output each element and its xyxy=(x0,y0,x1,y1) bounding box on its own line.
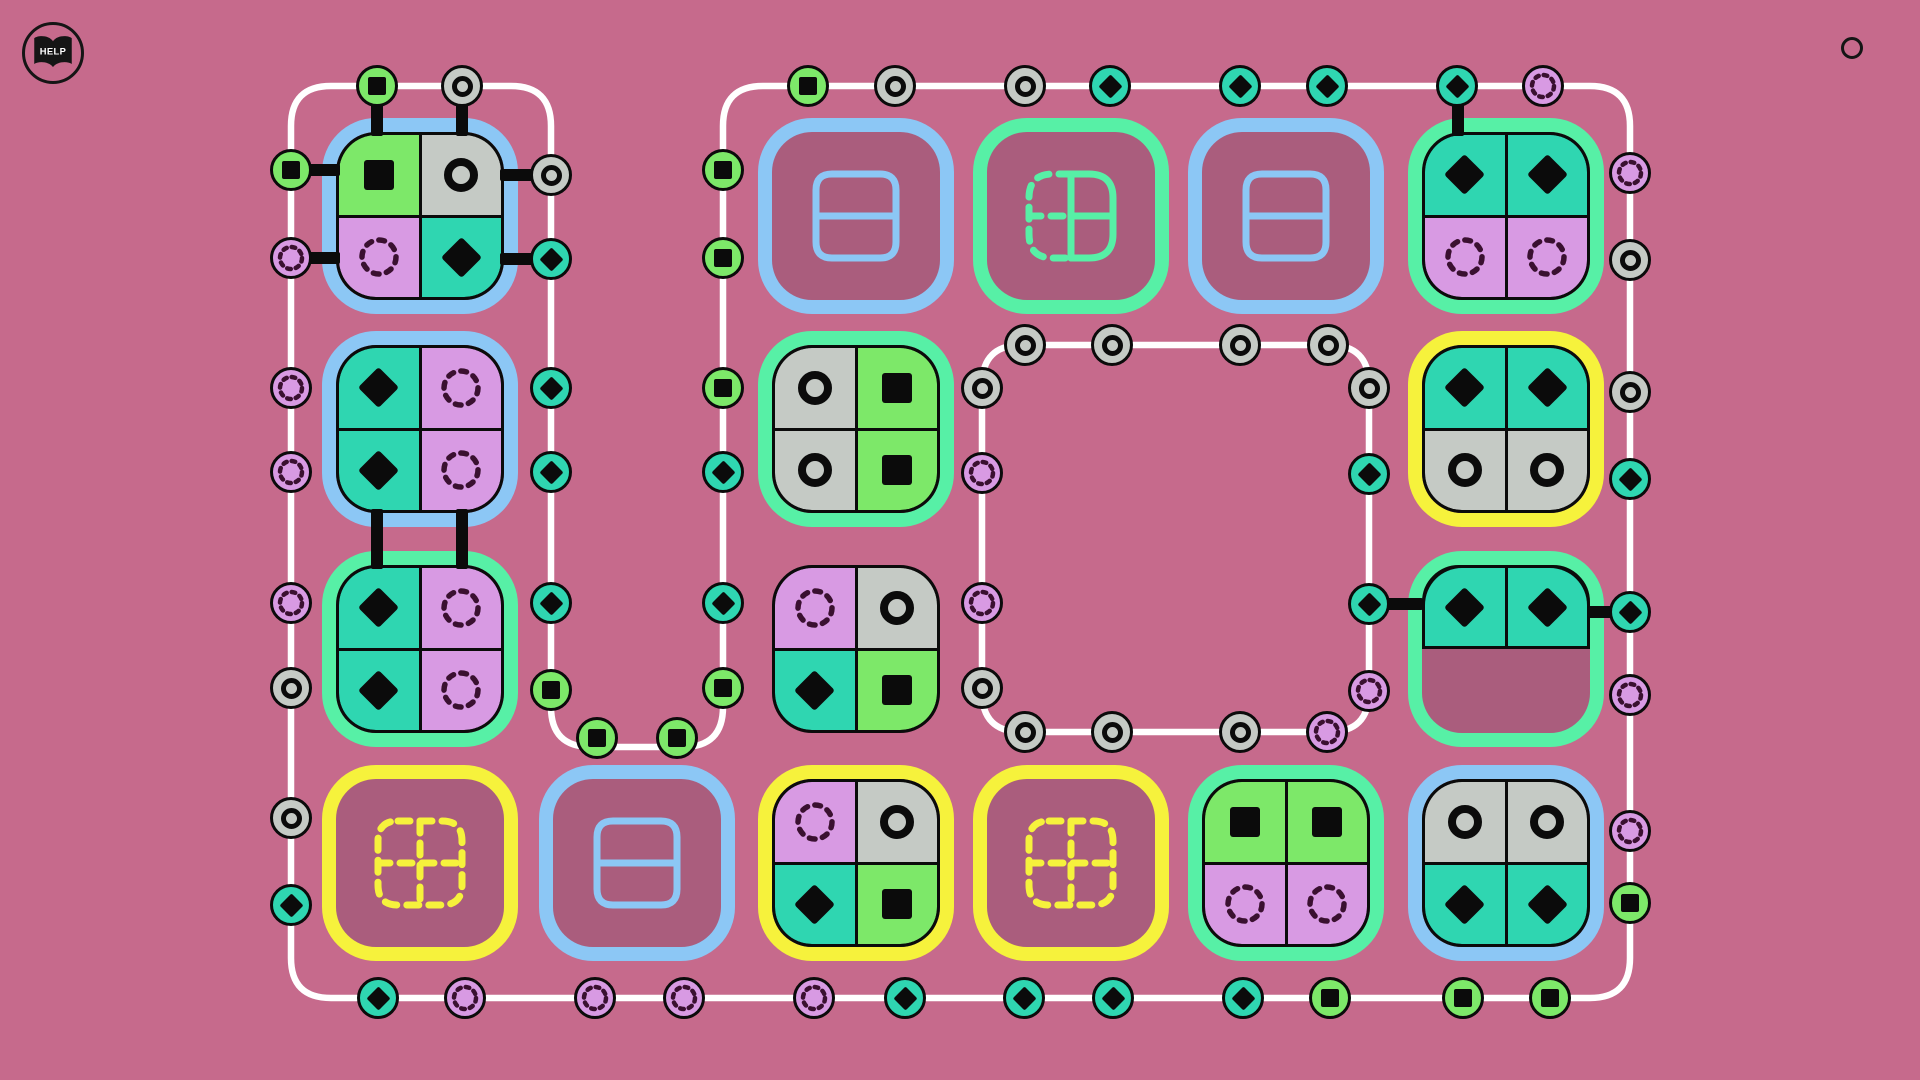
piece-cell-violet-dotted xyxy=(422,431,502,511)
ring-glyph xyxy=(1620,250,1641,271)
square-glyph xyxy=(1541,989,1559,1007)
track-node-violet-dotted xyxy=(1306,711,1348,753)
piece-r3c1[interactable] xyxy=(336,565,504,733)
piece-cell-gray-ring xyxy=(775,431,855,511)
track-node-violet-dotted xyxy=(1348,670,1390,712)
piece-cell-violet-dotted xyxy=(775,568,855,648)
dotted-circle-glyph xyxy=(1312,717,1342,747)
dotted-circle-glyph xyxy=(1443,235,1487,279)
track-node-violet-dotted xyxy=(663,977,705,1019)
piece-cell-violet-dotted xyxy=(1205,865,1285,945)
dotted-circle-glyph xyxy=(967,588,997,618)
empty-slot-two-rows-icon xyxy=(808,168,904,264)
help-button[interactable]: HELP xyxy=(22,22,84,84)
dotted-circle-glyph xyxy=(793,800,837,844)
diamond-glyph xyxy=(1231,986,1255,1010)
diamond-glyph xyxy=(1527,586,1568,627)
dotted-circle-glyph xyxy=(1615,816,1645,846)
track-node-violet-dotted xyxy=(793,977,835,1019)
slot-interior-r4c1 xyxy=(336,779,504,947)
dotted-circle-glyph xyxy=(439,366,483,410)
dotted-circle-glyph xyxy=(1615,158,1645,188)
slot-interior-r1c5 xyxy=(1202,132,1370,300)
diamond-glyph xyxy=(1444,154,1485,195)
diamond-glyph xyxy=(358,587,399,628)
dotted-circle-glyph xyxy=(967,458,997,488)
piece-cell-violet-dotted xyxy=(422,348,502,428)
track-node-green-square xyxy=(702,237,744,279)
slot-interior-r1c4 xyxy=(987,132,1155,300)
track-node-gray-ring xyxy=(1004,65,1046,107)
track-node-gray-ring xyxy=(1091,324,1133,366)
empty-slot-two-rows-icon xyxy=(1238,168,1334,264)
track-node-gray-ring xyxy=(961,667,1003,709)
piece-cell-teal-diamond xyxy=(339,431,419,511)
dotted-circle-glyph xyxy=(1354,676,1384,706)
piece-cell-teal-diamond xyxy=(1508,568,1588,646)
ring-glyph xyxy=(1015,335,1036,356)
piece-cell-violet-dotted xyxy=(422,568,502,648)
track-node-violet-dotted xyxy=(1609,810,1651,852)
tile-slot-r4c2[interactable] xyxy=(539,765,735,961)
tile-slot-r1c4[interactable] xyxy=(973,118,1169,314)
diamond-glyph xyxy=(1618,467,1642,491)
piece-cell-teal-diamond xyxy=(1425,865,1505,945)
diamond-glyph xyxy=(893,986,917,1010)
piece-cell-teal-diamond xyxy=(422,218,502,298)
piece-r4c6[interactable] xyxy=(1422,779,1590,947)
square-glyph xyxy=(1454,989,1472,1007)
track-node-teal-diamond xyxy=(1609,591,1651,633)
square-glyph xyxy=(364,160,394,190)
square-glyph xyxy=(882,373,912,403)
dotted-circle-glyph xyxy=(669,983,699,1013)
ring-glyph xyxy=(1230,722,1251,743)
dotted-circle-glyph xyxy=(439,668,483,712)
square-glyph xyxy=(668,729,686,747)
ring-glyph xyxy=(972,678,993,699)
piece-cell-teal-diamond xyxy=(339,651,419,731)
tile-slot-r1c3[interactable] xyxy=(758,118,954,314)
diamond-glyph xyxy=(1444,884,1485,925)
piece-cell-teal-diamond xyxy=(1508,135,1588,215)
diamond-glyph xyxy=(1444,367,1485,408)
track-node-teal-diamond xyxy=(1222,977,1264,1019)
piece-cell-green-square xyxy=(339,135,419,215)
piece-cell-gray-ring xyxy=(1508,782,1588,862)
track-node-teal-diamond xyxy=(702,582,744,624)
track-node-green-square xyxy=(1442,977,1484,1019)
piece-cell-teal-diamond xyxy=(1425,135,1505,215)
track-node-green-square xyxy=(356,65,398,107)
piece-r1c1[interactable] xyxy=(336,132,504,300)
piece-cell-teal-diamond xyxy=(1508,348,1588,428)
piece-cell-violet-dotted xyxy=(422,651,502,731)
ring-glyph xyxy=(1230,335,1251,356)
track-node-green-square xyxy=(270,149,312,191)
track-node-gray-ring xyxy=(1004,324,1046,366)
square-glyph xyxy=(1621,894,1639,912)
ring-glyph xyxy=(281,808,302,829)
piece-cell-gray-ring xyxy=(858,782,938,862)
empty-slot-dashed-grid-icon xyxy=(372,815,468,911)
inner-track-path xyxy=(982,345,1369,732)
track-node-gray-ring xyxy=(1307,324,1349,366)
piece-cell-teal-diamond xyxy=(1508,865,1588,945)
piece-cell-green-square xyxy=(858,865,938,945)
square-glyph xyxy=(368,77,386,95)
ring-glyph xyxy=(972,378,993,399)
ring-glyph xyxy=(1102,722,1123,743)
track-node-gray-ring xyxy=(441,65,483,107)
piece-cell-green-square xyxy=(858,651,938,731)
track-node-teal-diamond xyxy=(530,451,572,493)
track-node-violet-dotted xyxy=(574,977,616,1019)
dotted-circle-glyph xyxy=(1305,882,1349,926)
piece-r3c3[interactable] xyxy=(772,565,940,733)
diamond-glyph xyxy=(1098,74,1122,98)
ring-glyph xyxy=(1620,382,1641,403)
connector-bar xyxy=(371,509,383,569)
dotted-circle-glyph xyxy=(1615,680,1645,710)
piece-r4c5[interactable] xyxy=(1202,779,1370,947)
diamond-glyph xyxy=(1357,462,1381,486)
diamond-glyph xyxy=(1618,600,1642,624)
diamond-glyph xyxy=(539,376,563,400)
dotted-circle-glyph xyxy=(276,243,306,273)
ring-glyph xyxy=(1318,335,1339,356)
diamond-glyph xyxy=(1101,986,1125,1010)
dotted-circle-glyph xyxy=(276,588,306,618)
track-node-teal-diamond xyxy=(1306,65,1348,107)
track-node-teal-diamond xyxy=(1348,453,1390,495)
slot-interior-r4c4 xyxy=(987,779,1155,947)
ring-glyph xyxy=(1448,805,1482,839)
track-node-gray-ring xyxy=(270,797,312,839)
diamond-glyph xyxy=(358,450,399,491)
track-node-violet-dotted xyxy=(1609,674,1651,716)
ring-glyph xyxy=(798,371,832,405)
connector-bar xyxy=(456,509,468,569)
track-node-teal-diamond xyxy=(1219,65,1261,107)
empty-slot-two-rows-icon xyxy=(589,815,685,911)
diamond-glyph xyxy=(539,247,563,271)
dotted-circle-glyph xyxy=(1528,71,1558,101)
track-node-green-square xyxy=(702,367,744,409)
diamond-glyph xyxy=(539,460,563,484)
track-node-violet-dotted xyxy=(1522,65,1564,107)
diamond-glyph xyxy=(1357,592,1381,616)
piece-cell-teal-diamond xyxy=(1425,568,1505,646)
square-glyph xyxy=(882,675,912,705)
track-node-teal-diamond xyxy=(530,238,572,280)
help-book-icon: HELP xyxy=(28,28,78,78)
track-node-gray-ring xyxy=(1609,239,1651,281)
track-node-teal-diamond xyxy=(1348,583,1390,625)
diamond-glyph xyxy=(1527,154,1568,195)
track-node-gray-ring xyxy=(1004,711,1046,753)
track-node-green-square xyxy=(530,669,572,711)
ring-glyph xyxy=(541,165,562,186)
tile-slot-r4c4[interactable] xyxy=(973,765,1169,961)
ring-glyph xyxy=(1359,378,1380,399)
dotted-circle-glyph xyxy=(439,586,483,630)
track-node-violet-dotted xyxy=(270,237,312,279)
piece-cell-gray-ring xyxy=(858,568,938,648)
track-node-gray-ring xyxy=(1219,324,1261,366)
diamond-glyph xyxy=(1228,74,1252,98)
piece-cell-teal-diamond xyxy=(1425,348,1505,428)
piece-cell-teal-diamond xyxy=(775,651,855,731)
diamond-glyph xyxy=(1527,884,1568,925)
piece-cell-green-square xyxy=(858,431,938,511)
track-node-violet-dotted xyxy=(270,582,312,624)
ring-glyph xyxy=(1015,76,1036,97)
track-node-teal-diamond xyxy=(530,367,572,409)
track-node-teal-diamond xyxy=(884,977,926,1019)
diamond-glyph xyxy=(1012,986,1036,1010)
square-glyph xyxy=(1312,807,1342,837)
track-node-green-square xyxy=(787,65,829,107)
ring-glyph xyxy=(1448,453,1482,487)
track-node-violet-dotted xyxy=(444,977,486,1019)
square-glyph xyxy=(588,729,606,747)
track-node-violet-dotted xyxy=(1609,152,1651,194)
piece-r2c1[interactable] xyxy=(336,345,504,513)
track-node-violet-dotted xyxy=(270,367,312,409)
dotted-circle-glyph xyxy=(276,457,306,487)
corner-circle-button[interactable] xyxy=(1841,37,1863,59)
piece-r3c6[interactable] xyxy=(1422,565,1590,649)
ring-glyph xyxy=(880,805,914,839)
ring-glyph xyxy=(885,76,906,97)
piece-cell-gray-ring xyxy=(1425,782,1505,862)
piece-cell-violet-dotted xyxy=(1425,218,1505,298)
piece-cell-green-square xyxy=(1205,782,1285,862)
track-node-teal-diamond xyxy=(1436,65,1478,107)
diamond-glyph xyxy=(794,670,835,711)
piece-cell-green-square xyxy=(858,348,938,428)
diamond-glyph xyxy=(1445,74,1469,98)
piece-r2c3[interactable] xyxy=(772,345,940,513)
empty-slot-half-dashed-grid-icon xyxy=(1023,168,1119,264)
square-glyph xyxy=(714,249,732,267)
dotted-circle-glyph xyxy=(793,586,837,630)
track-node-gray-ring xyxy=(961,367,1003,409)
piece-cell-violet-dotted xyxy=(1508,218,1588,298)
square-glyph xyxy=(714,679,732,697)
empty-slot-dashed-grid-icon xyxy=(1023,815,1119,911)
piece-cell-gray-ring xyxy=(1508,431,1588,511)
track-node-teal-diamond xyxy=(270,884,312,926)
track-node-green-square xyxy=(1529,977,1571,1019)
ring-glyph xyxy=(1102,335,1123,356)
tile-slot-r4c1[interactable] xyxy=(322,765,518,961)
slot-interior-r4c2 xyxy=(553,779,721,947)
piece-cell-violet-dotted xyxy=(1288,865,1368,945)
square-glyph xyxy=(714,161,732,179)
diamond-glyph xyxy=(279,893,303,917)
track-node-green-square xyxy=(702,149,744,191)
track-node-green-square xyxy=(1609,882,1651,924)
diamond-glyph xyxy=(358,670,399,711)
ring-glyph xyxy=(1015,722,1036,743)
dotted-circle-glyph xyxy=(580,983,610,1013)
track-node-teal-diamond xyxy=(702,451,744,493)
track-node-gray-ring xyxy=(1219,711,1261,753)
track-node-gray-ring xyxy=(1609,371,1651,413)
track-node-gray-ring xyxy=(270,667,312,709)
ring-glyph xyxy=(444,158,478,192)
diamond-glyph xyxy=(358,367,399,408)
piece-r2c6[interactable] xyxy=(1422,345,1590,513)
piece-r1c6[interactable] xyxy=(1422,132,1590,300)
diamond-glyph xyxy=(1444,586,1485,627)
square-glyph xyxy=(714,379,732,397)
ring-glyph xyxy=(281,678,302,699)
dotted-circle-glyph xyxy=(276,373,306,403)
track-node-teal-diamond xyxy=(1092,977,1134,1019)
piece-cell-gray-ring xyxy=(422,135,502,215)
track-node-violet-dotted xyxy=(961,582,1003,624)
track-node-violet-dotted xyxy=(270,451,312,493)
track-node-green-square xyxy=(1309,977,1351,1019)
dotted-circle-glyph xyxy=(357,235,401,279)
track-node-green-square xyxy=(576,717,618,759)
square-glyph xyxy=(882,889,912,919)
diamond-glyph xyxy=(1315,74,1339,98)
piece-cell-green-square xyxy=(1288,782,1368,862)
square-glyph xyxy=(1321,989,1339,1007)
track-node-green-square xyxy=(656,717,698,759)
diamond-glyph xyxy=(1527,367,1568,408)
track-node-teal-diamond xyxy=(1003,977,1045,1019)
track-node-gray-ring xyxy=(1348,367,1390,409)
square-glyph xyxy=(542,681,560,699)
ring-glyph xyxy=(880,591,914,625)
track-node-teal-diamond xyxy=(1609,458,1651,500)
dotted-circle-glyph xyxy=(799,983,829,1013)
track-node-violet-dotted xyxy=(961,452,1003,494)
diamond-glyph xyxy=(366,986,390,1010)
ring-glyph xyxy=(1530,805,1564,839)
square-glyph xyxy=(282,161,300,179)
square-glyph xyxy=(882,455,912,485)
ring-glyph xyxy=(798,453,832,487)
piece-cell-gray-ring xyxy=(1425,431,1505,511)
track-node-gray-ring xyxy=(1091,711,1133,753)
diamond-glyph xyxy=(711,591,735,615)
tile-slot-r1c5[interactable] xyxy=(1188,118,1384,314)
track-node-gray-ring xyxy=(874,65,916,107)
piece-r4c3[interactable] xyxy=(772,779,940,947)
track-node-gray-ring xyxy=(530,154,572,196)
track-node-green-square xyxy=(702,667,744,709)
piece-cell-violet-dotted xyxy=(775,782,855,862)
track-node-teal-diamond xyxy=(1089,65,1131,107)
track-node-teal-diamond xyxy=(357,977,399,1019)
ring-glyph xyxy=(1530,453,1564,487)
track-node-teal-diamond xyxy=(530,582,572,624)
square-glyph xyxy=(799,77,817,95)
slot-interior-r1c3 xyxy=(772,132,940,300)
game-board: HELP xyxy=(0,0,1920,1080)
piece-cell-teal-diamond xyxy=(339,568,419,648)
ring-glyph xyxy=(452,76,473,97)
dotted-circle-glyph xyxy=(1223,882,1267,926)
dotted-circle-glyph xyxy=(439,448,483,492)
diamond-glyph xyxy=(539,591,563,615)
square-glyph xyxy=(1230,807,1260,837)
piece-cell-gray-ring xyxy=(775,348,855,428)
piece-cell-violet-dotted xyxy=(339,218,419,298)
diamond-glyph xyxy=(794,884,835,925)
piece-cell-teal-diamond xyxy=(339,348,419,428)
dotted-circle-glyph xyxy=(450,983,480,1013)
help-label: HELP xyxy=(40,47,67,57)
diamond-glyph xyxy=(441,237,482,278)
dotted-circle-glyph xyxy=(1525,235,1569,279)
piece-cell-teal-diamond xyxy=(775,865,855,945)
diamond-glyph xyxy=(711,460,735,484)
